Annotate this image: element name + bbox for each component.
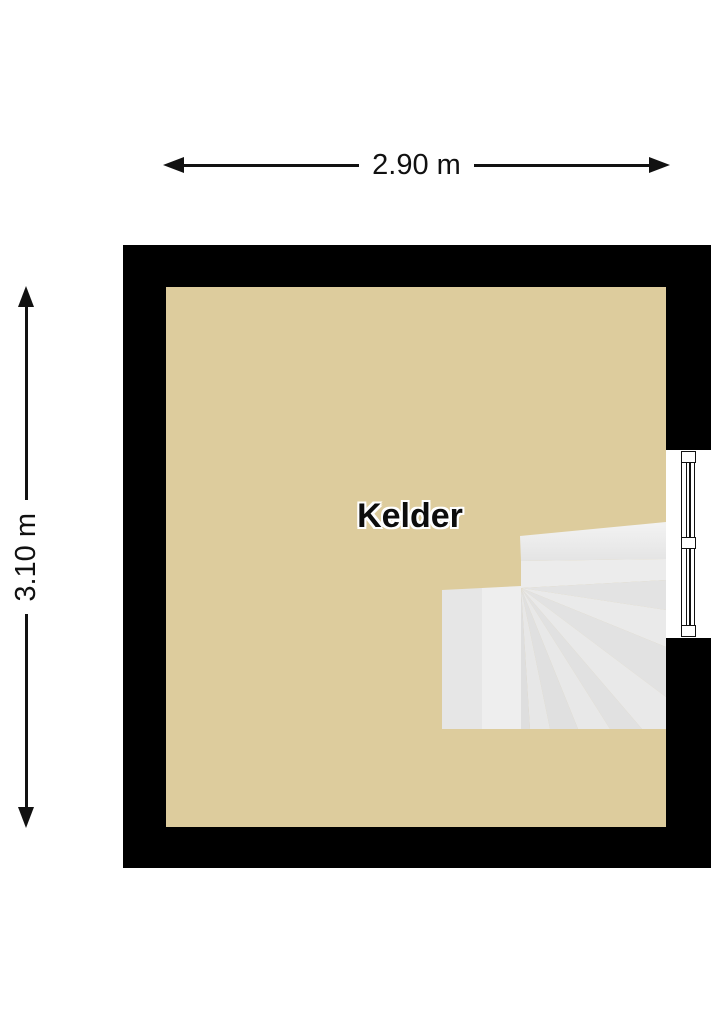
arrow-right-icon [649, 157, 670, 173]
arrow-up-icon [18, 286, 34, 307]
window-sash [681, 451, 696, 463]
window-sash [681, 537, 696, 549]
window-sash [681, 625, 696, 637]
floorplan-canvas: 2.90 m 3.10 m [0, 0, 724, 1024]
dimension-line [25, 614, 28, 807]
dimension-width-label: 2.90 m [359, 150, 474, 180]
dimension-height-label: 3.10 m [10, 500, 43, 615]
dimension-line [474, 164, 649, 167]
dimension-height: 3.10 m [11, 286, 41, 828]
arrow-left-icon [163, 157, 184, 173]
room-label: Kelder [330, 494, 490, 538]
window-symbol [666, 450, 711, 638]
window-frame-icon [681, 451, 695, 636]
stairs-icon [442, 505, 667, 729]
dimension-width: 2.90 m [163, 150, 670, 180]
arrow-down-icon [18, 807, 34, 828]
dimension-line [184, 164, 359, 167]
dimension-line [25, 307, 28, 500]
